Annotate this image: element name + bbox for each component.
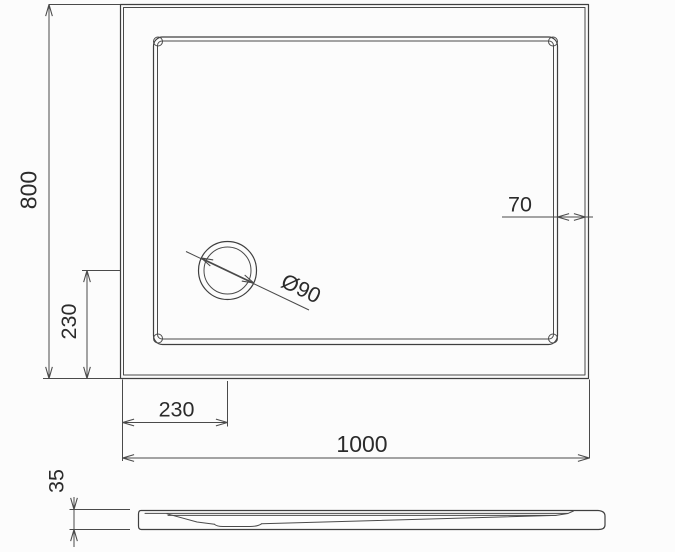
profile-far-rim-line: [145, 511, 574, 513]
drain-diameter-label: Ø90: [277, 269, 324, 308]
depth-dimension-label: 800: [16, 171, 42, 209]
drain-offset-vertical-label: 230: [57, 304, 81, 340]
tray-basin-edge-inner-line: [158, 41, 554, 339]
rim-offset-label: 70: [508, 193, 532, 217]
dimension-height-35: 35: [45, 469, 131, 547]
diameter-arrow-line: [201, 258, 253, 283]
width-dimension-label: 1000: [336, 431, 387, 457]
technical-drawing-canvas: 800 230 70 Ø90 230: [0, 0, 675, 552]
dimension-drain-offset-vertical-230: 230: [57, 271, 121, 379]
dimension-drain-offset-horizontal-230: 230: [123, 380, 228, 462]
profile-drain-recess: [215, 524, 262, 527]
tray-outer-edge-inner-line: [124, 8, 586, 376]
side-view: [139, 511, 606, 530]
plan-view: [121, 5, 589, 379]
tray-outer-edge: [121, 5, 589, 379]
shower-tray-drawing: 800 230 70 Ø90 230: [0, 0, 675, 552]
drain-offset-horizontal-label: 230: [159, 398, 195, 422]
tray-basin-edge: [154, 37, 558, 345]
dimension-rim-offset-70: 70: [502, 193, 593, 218]
tray-height-label: 35: [45, 469, 69, 493]
